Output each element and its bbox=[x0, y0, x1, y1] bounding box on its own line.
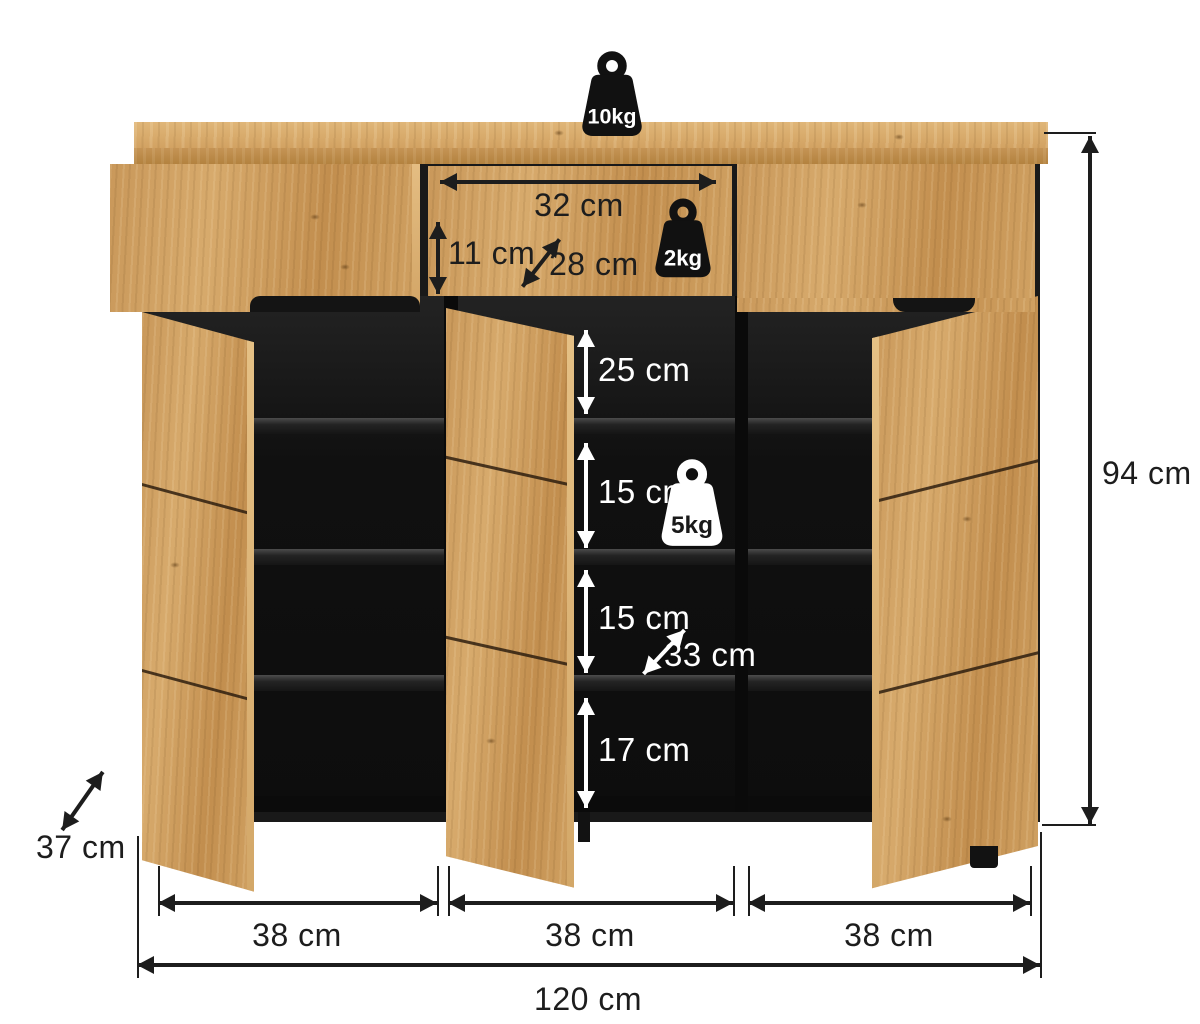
dim-comp2-arrow bbox=[584, 443, 588, 548]
wood-knot bbox=[486, 738, 496, 744]
weight-2kg-icon: 2kg bbox=[646, 192, 720, 290]
extension-line bbox=[1030, 866, 1032, 916]
right-section-rail bbox=[737, 298, 1035, 312]
extension-line bbox=[1040, 832, 1042, 978]
dim-height-tick-top bbox=[1044, 132, 1096, 134]
left-drawer-front-open bbox=[110, 164, 420, 312]
dim-comp3-arrow bbox=[584, 570, 588, 673]
dim-comp2-label: 15 cm bbox=[598, 474, 690, 510]
dim-section1-arrow bbox=[158, 901, 437, 905]
weight-5kg-label: 5kg bbox=[671, 512, 713, 539]
door-groove bbox=[136, 481, 260, 517]
section-divider-right bbox=[735, 296, 748, 812]
dim-section2-label: 38 cm bbox=[545, 918, 635, 953]
weight-10kg-icon: 10kg bbox=[570, 50, 654, 144]
cabinet-foot bbox=[970, 846, 998, 868]
dim-depth-label: 37 cm bbox=[36, 830, 126, 865]
wood-knot bbox=[170, 562, 180, 568]
dim-drawer-depth-label: 28 cm bbox=[549, 247, 639, 282]
middle-door-open bbox=[446, 308, 574, 890]
door-groove bbox=[439, 454, 580, 488]
wood-knot bbox=[340, 264, 350, 270]
door-groove bbox=[136, 667, 260, 703]
grip-notch bbox=[250, 296, 420, 312]
door-groove bbox=[866, 458, 1043, 505]
extension-line bbox=[733, 866, 735, 916]
dim-drawer-width-label: 32 cm bbox=[534, 188, 624, 223]
dim-section2-arrow bbox=[448, 901, 733, 905]
grip-notch bbox=[893, 298, 975, 312]
right-door-open bbox=[872, 296, 1038, 890]
dim-comp4-label: 17 cm bbox=[598, 732, 690, 768]
wood-knot bbox=[857, 202, 867, 208]
dim-height-arrow bbox=[1088, 136, 1092, 824]
product-dimension-image: 10kg 2kg 5kg 32 cm 11 cm 28 cm 25 cm 15 … bbox=[0, 0, 1200, 1024]
dim-comp1-arrow bbox=[584, 330, 588, 414]
dim-comp1-label: 25 cm bbox=[598, 352, 690, 388]
door-groove bbox=[439, 634, 580, 668]
door-edge bbox=[872, 296, 879, 890]
dim-height-label: 94 cm bbox=[1102, 456, 1192, 491]
extension-line bbox=[437, 866, 439, 916]
wood-knot bbox=[962, 516, 972, 522]
dim-drawer-width-arrow bbox=[440, 180, 716, 184]
dim-comp4-arrow bbox=[584, 698, 588, 808]
dim-section3-arrow bbox=[748, 901, 1030, 905]
door-edge bbox=[567, 308, 574, 890]
weight-2kg-label: 2kg bbox=[664, 245, 702, 270]
dim-drawer-height-arrow bbox=[436, 222, 440, 294]
door-edge bbox=[247, 312, 254, 894]
dim-section1-label: 38 cm bbox=[252, 918, 342, 953]
weight-10kg-label: 10kg bbox=[587, 104, 636, 128]
wood-knot bbox=[310, 214, 320, 220]
wood-knot bbox=[894, 134, 904, 140]
door-groove bbox=[866, 650, 1043, 697]
wood-knot bbox=[554, 130, 564, 136]
wood-knot bbox=[942, 816, 952, 822]
cabinet-leg bbox=[578, 812, 590, 842]
dim-width-arrow bbox=[137, 963, 1040, 967]
dim-width-label: 120 cm bbox=[534, 982, 642, 1017]
drawer-edge bbox=[412, 164, 420, 312]
dim-height-tick-bottom bbox=[1042, 824, 1096, 826]
cabinet-top-edge bbox=[134, 148, 1048, 164]
dim-section3-label: 38 cm bbox=[844, 918, 934, 953]
dim-depth-arrow bbox=[60, 771, 104, 831]
right-drawer-front bbox=[737, 162, 1035, 298]
dim-shelf-depth-label: 33 cm bbox=[664, 637, 756, 673]
left-door-open bbox=[142, 312, 254, 894]
dim-drawer-height-label: 11 cm bbox=[448, 236, 535, 271]
